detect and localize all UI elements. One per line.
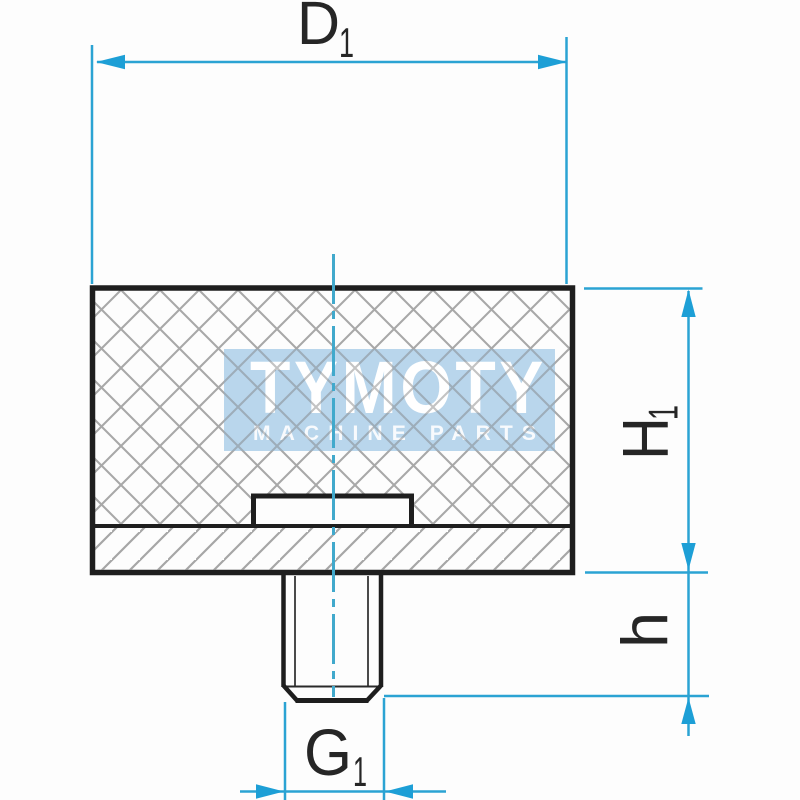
svg-text:1: 1 (339, 19, 354, 66)
svg-text:1: 1 (353, 748, 367, 795)
svg-text:h: h (608, 612, 681, 648)
svg-text:D: D (297, 0, 340, 57)
svg-text:G: G (304, 715, 352, 789)
svg-text:H: H (609, 417, 682, 460)
svg-text:1: 1 (640, 405, 687, 420)
